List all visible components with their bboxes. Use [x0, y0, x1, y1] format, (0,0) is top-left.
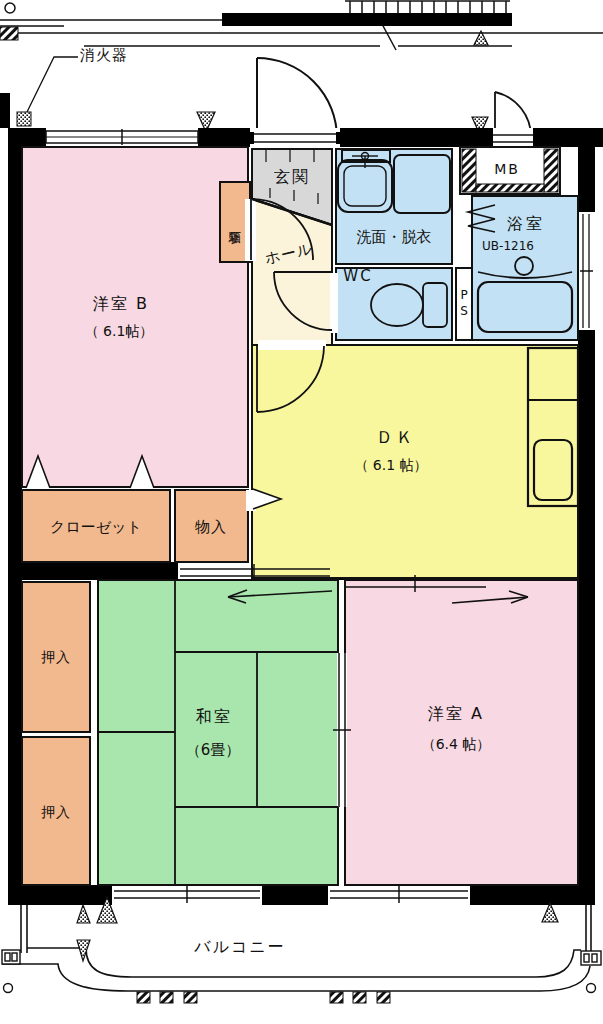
window-japanese-bottom [112, 885, 262, 905]
dk-size: （ 6.1 帖） [354, 458, 427, 472]
meter-box-label: MB [494, 162, 520, 176]
fire-extinguisher-icon [17, 112, 31, 126]
floorplan-drawing [0, 0, 603, 1024]
closet-label: クローゼット [50, 520, 142, 535]
oshiire-upper-label: 押入 [41, 650, 71, 664]
balcony-outline [2, 905, 591, 991]
genkan-label: 玄関 [274, 169, 310, 185]
japanese-room-size: （6畳） [186, 743, 241, 758]
washroom-label: 洗面・脱衣 [357, 230, 432, 245]
storage-box-label: 物入 [195, 520, 227, 535]
balcony-vents [137, 992, 390, 1003]
fire-extinguisher-label: 消火器 [80, 48, 128, 63]
left-wall-stub [0, 93, 10, 128]
western-a-label: 洋室 A [428, 706, 484, 722]
meter-box-opening [493, 128, 533, 147]
balcony-post-right [587, 984, 596, 993]
floorplan: 消火器 玄関 下駄箱 ホール 洗面・脱衣 WC PS 浴室 UB-1216 MB… [0, 0, 603, 1024]
window-westernA-bottom [328, 885, 470, 905]
oshiire-lower-label: 押入 [41, 805, 71, 819]
railing-ticks [350, 1, 506, 13]
balcony-post-left [4, 984, 13, 993]
room-western-b [22, 147, 248, 487]
column-circle [5, 3, 15, 13]
western-b-size: （ 6.1帖） [85, 324, 154, 338]
break-line [382, 24, 396, 50]
room-western-a [345, 580, 578, 885]
bathroom-label: 浴室 [507, 216, 545, 232]
entrance-door [257, 58, 337, 138]
western-b-label: 洋室 B [93, 296, 149, 312]
balcony-markers [77, 897, 558, 961]
corridor-hatch-box [0, 27, 18, 40]
dk-label: ＤＫ [376, 429, 416, 446]
pipe-space-label: PS [458, 288, 470, 320]
japanese-room-label: 和室 [196, 709, 232, 725]
balcony-label: バルコニー [194, 939, 286, 955]
fire-extinguisher-leader [27, 57, 78, 112]
corridor-wall [222, 13, 512, 26]
bathroom-model-label: UB-1216 [482, 240, 534, 252]
western-a-size: （6.4 帖） [422, 737, 491, 751]
wc-label: WC [343, 269, 372, 284]
balcony-partitions [2, 950, 601, 965]
entrance-opening [250, 128, 340, 147]
window-westernB-top [46, 128, 198, 147]
window-bathroom-right [578, 212, 595, 330]
